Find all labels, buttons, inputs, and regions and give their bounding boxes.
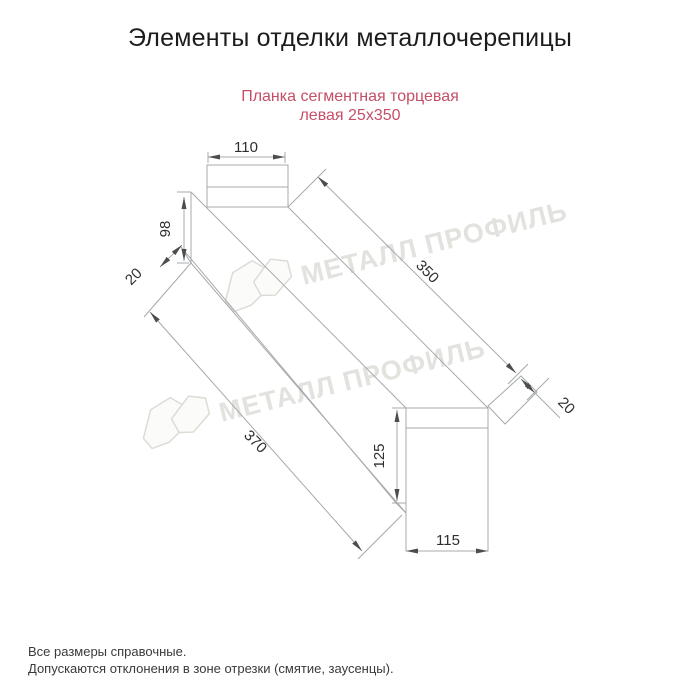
dim-left-fold: 20 — [122, 265, 146, 289]
watermark-text-lower: МЕТАЛЛ ПРОФИЛЬ — [216, 332, 489, 427]
dim-end-height: 125 — [371, 443, 388, 468]
dim-right-fold: 20 — [554, 394, 578, 418]
dim-top-width: 110 — [234, 139, 258, 156]
watermark-logo-lower: МЕТАЛЛ ПРОФИЛЬ — [135, 321, 489, 450]
dim-end-width: 115 — [436, 532, 460, 549]
technical-drawing: МЕТАЛЛ ПРОФИЛЬ МЕТАЛЛ ПРОФИЛЬ — [0, 0, 700, 700]
footnote-line-1: Все размеры справочные. — [28, 643, 394, 660]
footnotes: Все размеры справочные. Допускаются откл… — [28, 643, 394, 677]
footnote-line-2: Допускаются отклонения в зоне отрезки (с… — [28, 660, 394, 677]
dimension-labels: 110 98 20 350 20 370 125 115 — [122, 139, 578, 549]
watermark-logo-upper: МЕТАЛЛ ПРОФИЛЬ — [217, 184, 571, 313]
dim-length-bottom: 370 — [240, 427, 270, 457]
dim-left-height: 98 — [157, 221, 174, 238]
